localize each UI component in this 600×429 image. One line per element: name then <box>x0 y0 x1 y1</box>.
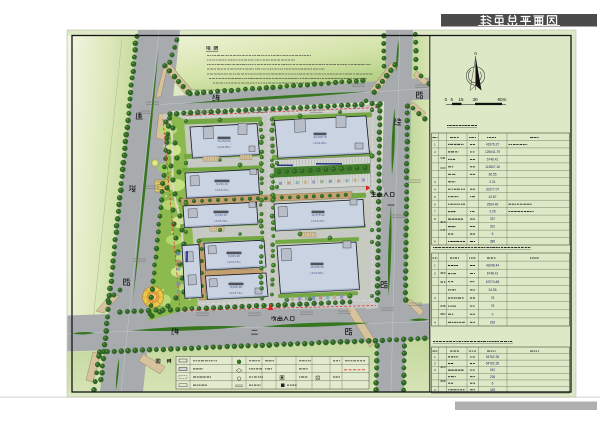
svg-text:4: 4 <box>434 320 436 324</box>
svg-text:2: 2 <box>434 272 436 276</box>
svg-text:2: 2 <box>434 150 436 154</box>
svg-text:43248.44: 43248.44 <box>486 264 500 268</box>
svg-text:6748.41: 6748.41 <box>487 272 499 276</box>
svg-text:H=23.95m: H=23.95m <box>311 271 325 275</box>
svg-text:5: 5 <box>434 195 436 199</box>
svg-text:H=15.75m: H=15.75m <box>228 260 242 264</box>
svg-text:H=15.75m: H=15.75m <box>216 188 230 192</box>
svg-text:20,298.70: 20,298.70 <box>313 135 327 139</box>
svg-text:19,245.30: 19,245.30 <box>310 265 324 269</box>
svg-text:H=23.95m: H=23.95m <box>218 145 232 149</box>
svg-text:113807.16: 113807.16 <box>485 165 500 169</box>
svg-text:76: 76 <box>491 304 495 308</box>
svg-text:8,236.10: 8,236.10 <box>215 213 227 217</box>
svg-text:263: 263 <box>490 320 496 324</box>
svg-text:8,236.10: 8,236.10 <box>216 182 228 186</box>
svg-text:H=15.75m: H=15.75m <box>215 219 229 223</box>
svg-text:1: 1 <box>434 264 436 268</box>
svg-text:6: 6 <box>492 232 494 236</box>
svg-text:15: 15 <box>459 97 465 102</box>
svg-text:429: 429 <box>490 388 496 392</box>
svg-text:4: 4 <box>434 388 436 392</box>
svg-text:36.55: 36.55 <box>489 172 497 176</box>
svg-text:0: 0 <box>445 97 448 102</box>
svg-text:30: 30 <box>473 97 479 102</box>
svg-text:4: 4 <box>434 187 436 191</box>
svg-text:10,278.92: 10,278.92 <box>311 213 325 217</box>
svg-text:54762.35: 54762.35 <box>486 362 500 366</box>
svg-text:8,006.38: 8,006.38 <box>230 285 242 289</box>
svg-text:1: 1 <box>434 355 436 359</box>
svg-text:41876.37: 41876.37 <box>486 143 500 147</box>
svg-text:9: 9 <box>434 240 436 244</box>
svg-text:242: 242 <box>490 368 496 372</box>
svg-text:2564.49: 2564.49 <box>487 202 499 206</box>
svg-text:3: 3 <box>434 180 436 184</box>
svg-text:125041.79: 125041.79 <box>485 150 500 154</box>
svg-text:44.87: 44.87 <box>489 195 497 199</box>
svg-text:2.31: 2.31 <box>489 180 495 184</box>
svg-text:H=15.75m: H=15.75m <box>230 291 244 295</box>
svg-text:67074.68: 67074.68 <box>486 280 500 284</box>
svg-text:H=15.75m: H=15.75m <box>312 219 326 223</box>
svg-text:6: 6 <box>492 381 494 385</box>
svg-text:3: 3 <box>434 296 436 300</box>
svg-text:6: 6 <box>434 202 436 206</box>
svg-text:20277.07: 20277.07 <box>486 187 500 191</box>
svg-text:60m: 60m <box>498 97 507 102</box>
svg-text:5: 5 <box>451 97 454 102</box>
svg-text:7: 7 <box>434 210 436 214</box>
svg-text:1: 1 <box>434 143 436 147</box>
svg-text:H=23.95m: H=23.95m <box>314 141 328 145</box>
svg-text:10,159.02: 10,159.02 <box>217 139 231 143</box>
svg-text:8,006.38: 8,006.38 <box>228 254 240 258</box>
svg-text:2: 2 <box>434 362 436 366</box>
svg-text:337: 337 <box>490 217 496 221</box>
svg-text:3.05: 3.05 <box>489 210 495 214</box>
svg-text:331: 331 <box>490 225 496 229</box>
svg-text:8: 8 <box>434 217 436 221</box>
svg-text:34.55: 34.55 <box>489 288 497 292</box>
svg-text:236: 236 <box>490 375 496 379</box>
svg-text:76: 76 <box>491 296 495 300</box>
svg-text:6748.41: 6748.41 <box>487 158 499 162</box>
svg-text:54762.35: 54762.35 <box>486 355 500 359</box>
svg-text:0: 0 <box>492 312 494 316</box>
svg-text:3: 3 <box>434 368 436 372</box>
svg-text:380: 380 <box>490 240 496 244</box>
